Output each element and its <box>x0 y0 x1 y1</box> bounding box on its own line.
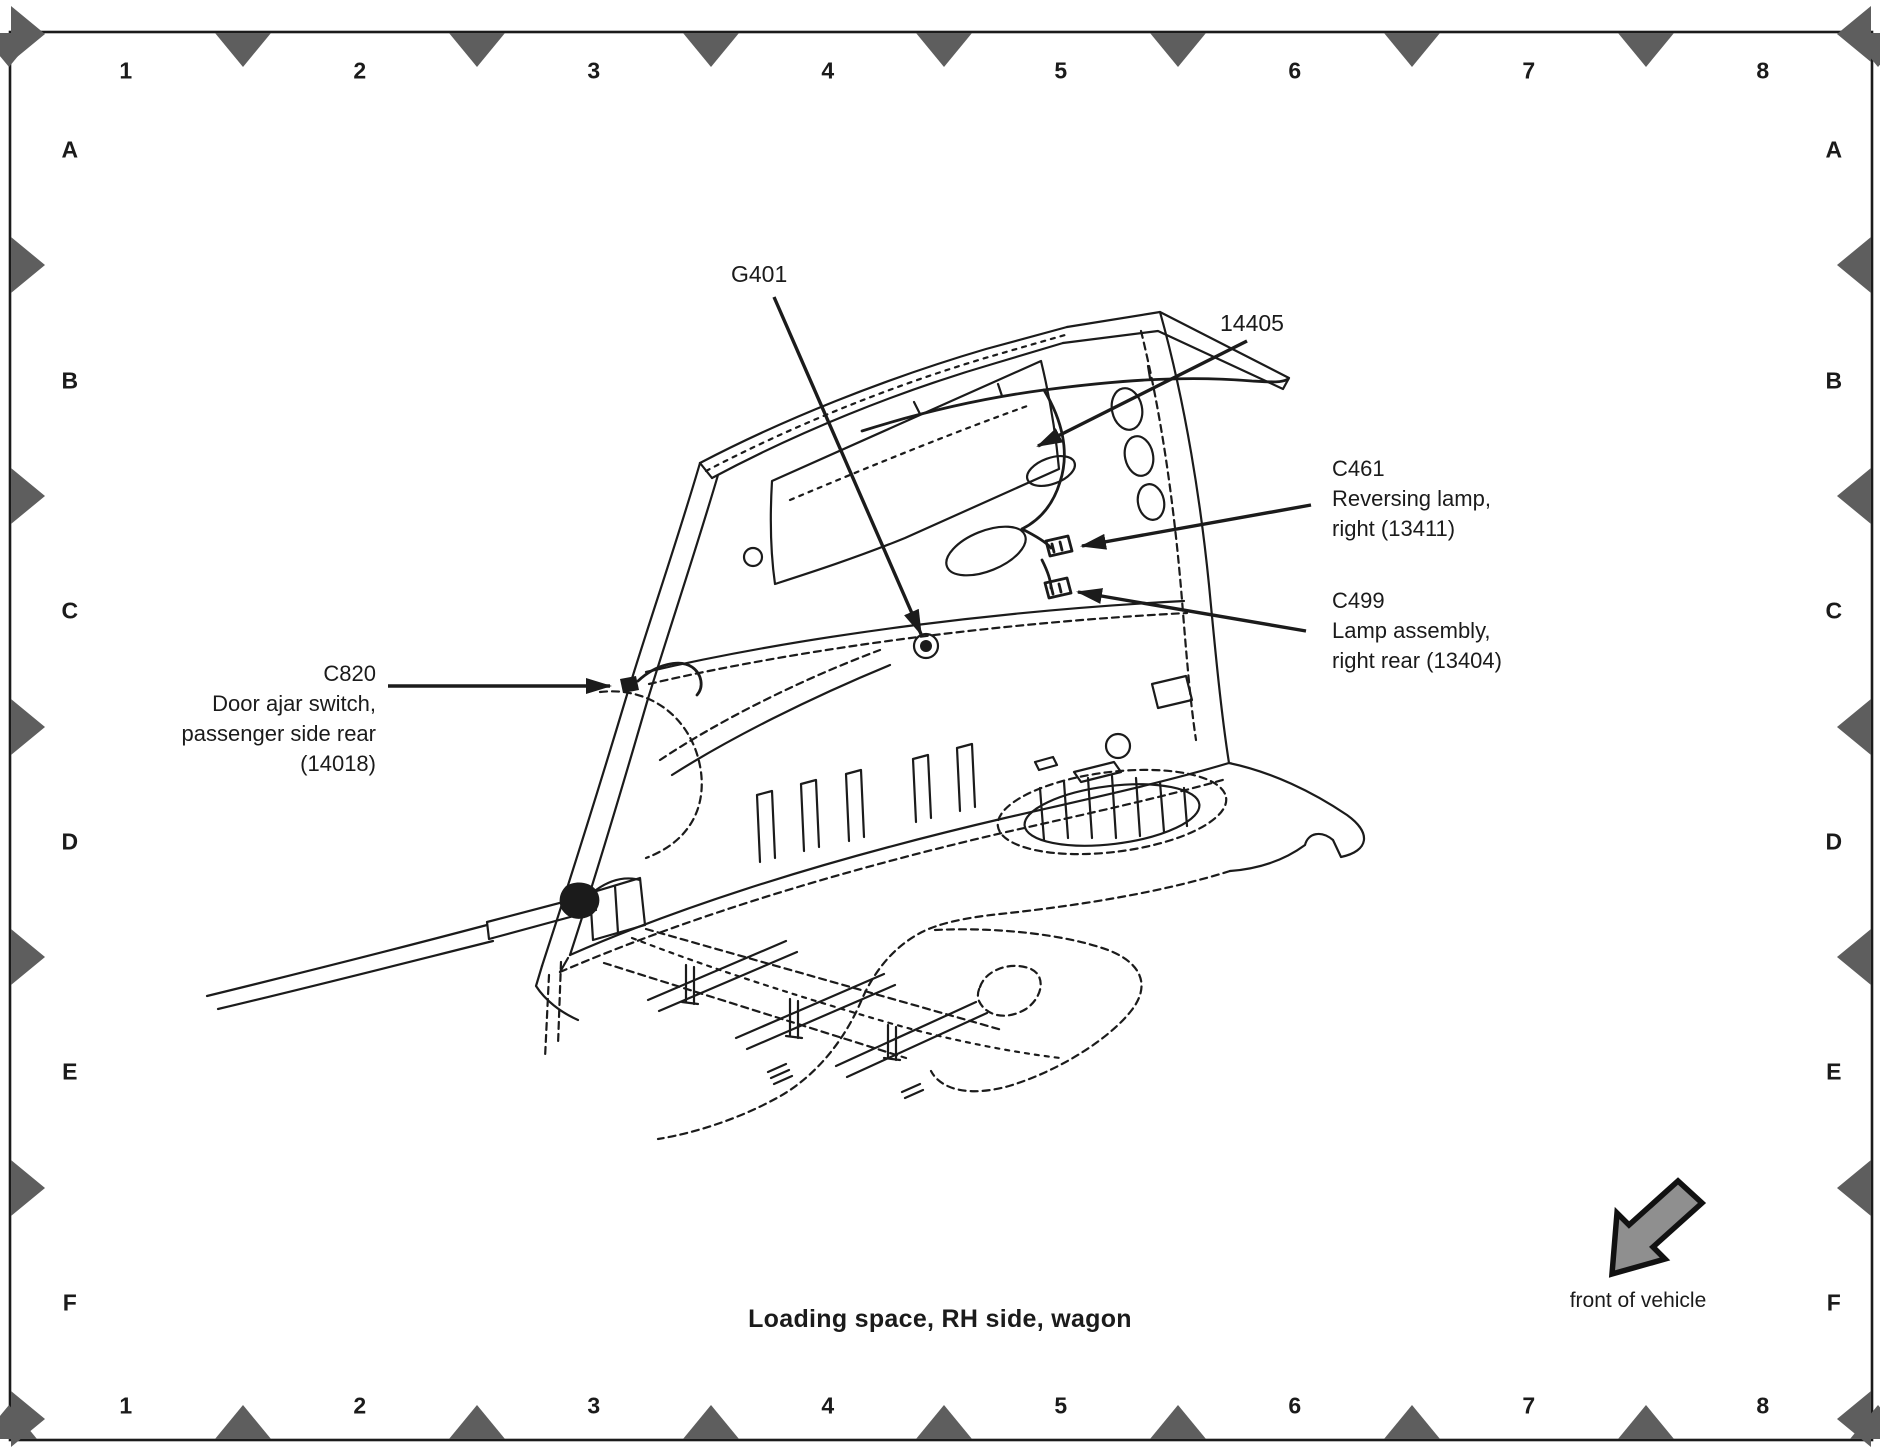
grid-col-8-top: 8 <box>1756 58 1769 85</box>
grid-triangles-left <box>11 6 45 1447</box>
grid-row-a-left: A <box>61 137 78 164</box>
grid-col-3-bottom: 3 <box>587 1393 600 1420</box>
grid-row-b-right: B <box>1825 368 1842 395</box>
callout-c461: C461 Reversing lamp, right (13411) <box>1332 454 1491 544</box>
grid-triangles-top <box>0 33 1880 67</box>
grid-row-c-left: C <box>61 598 78 625</box>
grid-row-f-right: F <box>1827 1290 1842 1317</box>
grid-triangles-bottom <box>0 1405 1880 1439</box>
grid-col-1-top: 1 <box>119 58 132 85</box>
grid-row-d-right: D <box>1825 829 1842 856</box>
grid-col-7-top: 7 <box>1522 58 1535 85</box>
leader-14405 <box>1038 341 1247 446</box>
grid-col-5-top: 5 <box>1054 58 1067 85</box>
callout-c461-line2: right (13411) <box>1332 514 1491 544</box>
grid-col-3-top: 3 <box>587 58 600 85</box>
grid-row-e-left: E <box>62 1059 78 1086</box>
callout-c820-code: C820 <box>126 659 376 689</box>
grid-col-8-bottom: 8 <box>1756 1393 1769 1420</box>
callout-c499: C499 Lamp assembly, right rear (13404) <box>1332 586 1502 676</box>
callout-c499-code: C499 <box>1332 586 1502 616</box>
callout-14405: 14405 <box>1220 308 1284 338</box>
callout-c820-line1: Door ajar switch, <box>126 689 376 719</box>
front-of-vehicle-label: front of vehicle <box>1548 1289 1728 1313</box>
grid-col-2-bottom: 2 <box>353 1393 366 1420</box>
leader-g401 <box>774 297 921 634</box>
wiring-harness-14405 <box>862 379 1288 431</box>
connector-c820 <box>620 676 639 693</box>
grid-col-5-bottom: 5 <box>1054 1393 1067 1420</box>
grid-row-a-right: A <box>1825 137 1842 164</box>
grid-col-7-bottom: 7 <box>1522 1393 1535 1420</box>
manual-diagram-page: 1 2 3 4 5 6 7 8 1 2 3 4 5 6 7 8 A B C D … <box>0 0 1880 1456</box>
grid-triangles-right <box>1837 6 1871 1447</box>
grid-row-f-left: F <box>63 1290 78 1317</box>
grid-col-6-bottom: 6 <box>1288 1393 1301 1420</box>
front-of-vehicle-arrow-icon <box>1612 1181 1702 1274</box>
figure-caption: Loading space, RH side, wagon <box>630 1305 1250 1334</box>
leader-arrows <box>388 297 1311 686</box>
callout-g401: G401 <box>731 259 787 289</box>
grid-col-6-top: 6 <box>1288 58 1301 85</box>
callout-c461-line1: Reversing lamp, <box>1332 484 1491 514</box>
grid-col-4-bottom: 4 <box>821 1393 834 1420</box>
g401-ground-stud <box>920 640 932 652</box>
callout-c499-line1: Lamp assembly, <box>1332 616 1502 646</box>
grid-col-1-bottom: 1 <box>119 1393 132 1420</box>
grid-col-2-top: 2 <box>353 58 366 85</box>
leader-c461 <box>1082 505 1311 546</box>
callout-c820-line3: (14018) <box>126 749 376 779</box>
vehicle-body-drawing <box>207 312 1364 1139</box>
callout-c820-line2: passenger side rear <box>126 719 376 749</box>
harness-grommet <box>560 883 600 919</box>
leader-c499 <box>1078 592 1306 631</box>
callout-c499-line2: right rear (13404) <box>1332 646 1502 676</box>
grid-row-e-right: E <box>1826 1059 1842 1086</box>
grid-row-b-left: B <box>61 368 78 395</box>
callout-c820: C820 Door ajar switch, passenger side re… <box>126 659 376 779</box>
connector-c499 <box>1045 578 1071 598</box>
callout-c461-code: C461 <box>1332 454 1491 484</box>
grid-row-c-right: C <box>1825 598 1842 625</box>
grid-col-4-top: 4 <box>821 58 834 85</box>
grid-row-d-left: D <box>61 829 78 856</box>
